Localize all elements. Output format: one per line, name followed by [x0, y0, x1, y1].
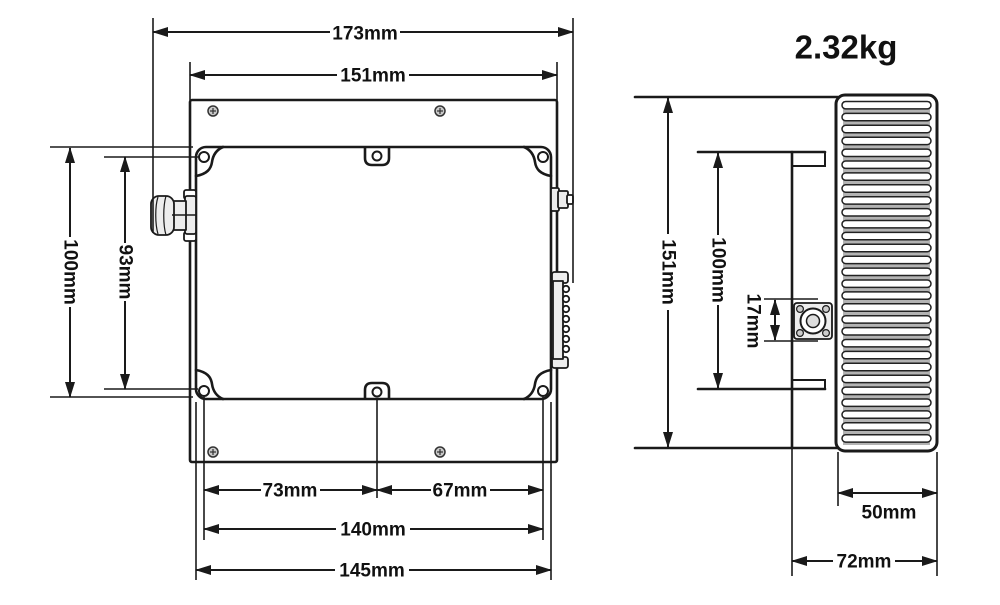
heatsink-fin — [842, 149, 931, 156]
side-view: 151mm 100mm 17mm 50mm 72mm — [635, 95, 937, 576]
heatsink-fin — [842, 292, 931, 299]
dim-label-overall-width: 173mm — [332, 24, 398, 45]
mechanical-dimension-drawing: 173mm 151mm 100mm 93mm 73mm 67mm 140mm 1… — [0, 0, 1000, 605]
heatsink-fin — [842, 423, 931, 430]
weight-label: 2.32kg — [795, 29, 898, 66]
cover-outline — [196, 147, 551, 399]
heatsink-fin — [842, 244, 931, 251]
heatsink-fin — [842, 328, 931, 335]
heatsink-fin — [842, 375, 931, 382]
dim-label-hole-pitch-h: 140mm — [340, 520, 406, 541]
dim-label-hole-pitch-v: 93mm — [115, 245, 136, 300]
heatsink-fin — [842, 304, 931, 311]
heatsink-fin — [842, 340, 931, 347]
dim-label-plate-width: 151mm — [340, 66, 406, 87]
heatsink-fin — [842, 268, 931, 275]
heatsink-fin — [842, 197, 931, 204]
heatsink-fin — [842, 102, 931, 109]
dsub-connector-icon — [552, 272, 569, 368]
n-connector-icon — [151, 190, 196, 241]
heatsink-fin — [842, 209, 931, 216]
mounting-hole — [538, 152, 548, 162]
screw — [435, 447, 445, 457]
dim-label-heatsink-depth: 50mm — [862, 503, 917, 524]
screw — [435, 106, 445, 116]
bottom-step — [792, 380, 825, 389]
heatsink-fin — [842, 363, 931, 370]
heatsink-fin — [842, 280, 931, 287]
heatsink-fin — [842, 316, 931, 323]
heatsink-fin — [842, 256, 931, 263]
heatsink-fin — [842, 161, 931, 168]
heatsink-fin — [842, 137, 931, 144]
dim-label-plate-height: 151mm — [658, 239, 679, 305]
heatsink-fin — [842, 125, 931, 132]
dim-label-side-body-height: 100mm — [708, 237, 729, 303]
heatsink-fin — [842, 185, 931, 192]
dim-label-overall-depth: 72mm — [837, 552, 892, 573]
heatsink-fin — [842, 351, 931, 358]
heatsink-fins — [842, 102, 931, 443]
dim-label-connector-size: 17mm — [743, 294, 764, 349]
heatsink-fin — [842, 411, 931, 418]
mounting-hole — [199, 152, 209, 162]
dim-label-body-width: 145mm — [339, 561, 405, 582]
dim-label-hole-right-span: 67mm — [433, 481, 488, 502]
sma-connector-icon — [551, 188, 573, 211]
front-view: 173mm 151mm 100mm 93mm 73mm 67mm 140mm 1… — [50, 18, 573, 582]
heatsink-fin — [842, 435, 931, 442]
mounting-hole — [373, 152, 382, 161]
screw — [208, 447, 218, 457]
mounting-hole — [199, 386, 209, 396]
drawing-canvas: 173mm 151mm 100mm 93mm 73mm 67mm 140mm 1… — [0, 0, 1000, 605]
heatsink-fin — [842, 387, 931, 394]
dim-label-hole-left-span: 73mm — [263, 481, 318, 502]
screw — [208, 106, 218, 116]
heatsink-fin — [842, 232, 931, 239]
rf-connector-flange-icon — [794, 303, 832, 339]
dim-label-body-height: 100mm — [60, 239, 81, 305]
top-step — [792, 152, 825, 166]
heatsink-fin — [842, 113, 931, 120]
heatsink-fin — [842, 399, 931, 406]
heatsink — [836, 95, 937, 451]
mounting-hole — [373, 388, 382, 397]
mounting-hole — [538, 386, 548, 396]
heatsink-fin — [842, 173, 931, 180]
heatsink-fin — [842, 221, 931, 228]
